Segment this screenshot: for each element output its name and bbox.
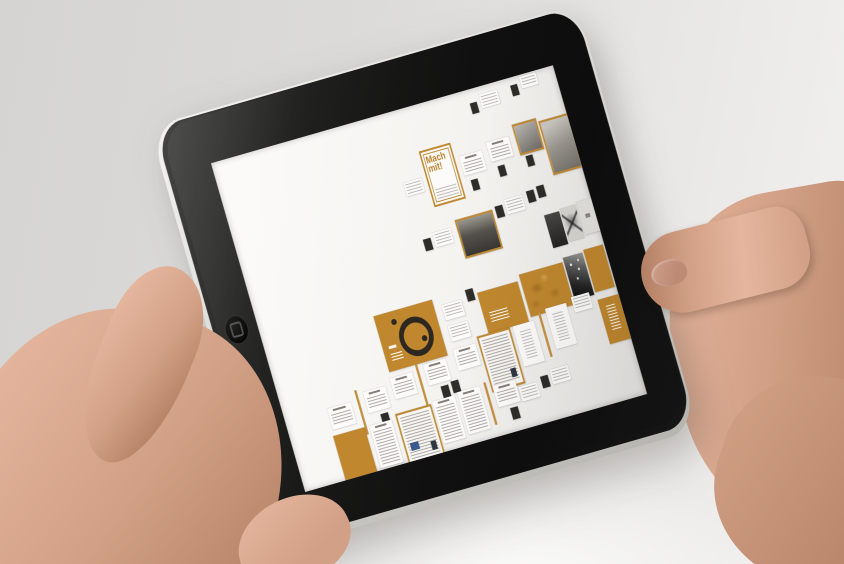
text-spread-thumbnail bbox=[453, 343, 482, 371]
text-block-thumbnail bbox=[549, 365, 571, 385]
image-thumbnail bbox=[497, 164, 507, 177]
image-thumbnail bbox=[525, 154, 535, 167]
text-block-thumbnail bbox=[519, 382, 541, 402]
text-spread-thumbnail bbox=[486, 136, 514, 162]
image-thumbnail bbox=[494, 205, 505, 219]
image-thumbnail bbox=[471, 178, 481, 191]
orange-page-solid bbox=[333, 427, 377, 480]
text-spread-thumbnail bbox=[363, 386, 392, 414]
image-thumbnail bbox=[536, 185, 547, 199]
text-spread-thumbnail bbox=[423, 358, 452, 386]
image-thumbnail bbox=[423, 238, 434, 252]
image-thumbnail bbox=[470, 102, 480, 115]
framed-photo-page bbox=[538, 113, 583, 175]
magazine-cover-thumbnail: Machmit! bbox=[419, 143, 466, 208]
text-spread-thumbnail bbox=[389, 372, 418, 400]
thumb-nail bbox=[649, 256, 690, 290]
photo-scene: Machmit! bbox=[0, 0, 844, 564]
image-thumbnail bbox=[510, 406, 521, 420]
image-thumbnail bbox=[510, 84, 520, 97]
text-block-thumbnail bbox=[571, 292, 593, 313]
text-block-thumbnail bbox=[403, 178, 425, 197]
text-block-thumbnail bbox=[504, 195, 526, 215]
text-block-thumbnail bbox=[448, 321, 472, 342]
framed-photo-spread bbox=[455, 210, 504, 259]
home-icon bbox=[229, 320, 244, 338]
toc-page-thumbnail bbox=[545, 303, 578, 349]
orange-spread-lines bbox=[597, 294, 631, 344]
text-block-thumbnail bbox=[442, 300, 466, 321]
cover-title-line: mit! bbox=[427, 162, 443, 175]
text-block-thumbnail bbox=[479, 90, 501, 109]
image-thumbnail bbox=[540, 375, 551, 389]
text-spread-thumbnail bbox=[327, 402, 357, 430]
image-thumbnail bbox=[465, 288, 476, 302]
image-thumbnail bbox=[526, 189, 537, 203]
text-block-thumbnail bbox=[519, 72, 539, 88]
text-block-thumbnail bbox=[432, 228, 454, 248]
flatplan-grid: Machmit! bbox=[211, 65, 553, 163]
text-spread-thumbnail bbox=[459, 150, 487, 176]
